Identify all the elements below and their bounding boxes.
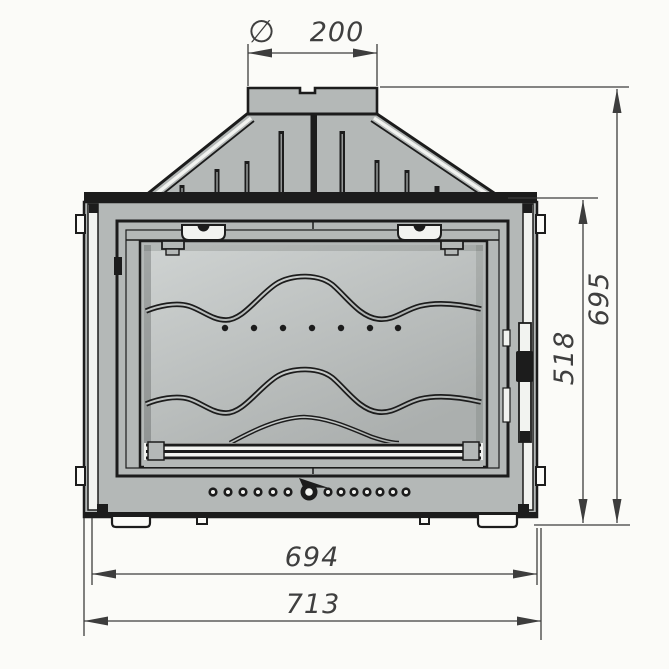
louver-left-cap	[148, 442, 164, 460]
dim-body-width: 694	[92, 518, 537, 585]
right-strip-bottom-clip	[518, 504, 529, 514]
arrow-bottom	[613, 499, 622, 523]
arrow-left	[92, 570, 116, 579]
glass-left-shade	[144, 245, 151, 443]
left-upper-hook	[76, 215, 85, 233]
latch-slot-upper	[503, 330, 510, 346]
flue-diameter-value: 200	[310, 17, 365, 48]
louver-right-cap	[463, 442, 479, 460]
hood-outline	[146, 114, 497, 195]
glass-top-shade	[144, 245, 483, 251]
body-width-value: 694	[285, 542, 340, 573]
left-strip-top-clip	[89, 204, 98, 213]
door	[114, 221, 508, 476]
latch-slot-lower	[503, 388, 510, 422]
flue-collar-outline	[248, 88, 377, 114]
dim-overall-width: 713	[84, 518, 541, 640]
arrow-right	[517, 617, 541, 626]
handle-grip	[516, 351, 533, 382]
overall-width-value: 713	[286, 589, 341, 620]
bottom-edge	[84, 512, 537, 517]
hood-center-seam	[311, 114, 318, 196]
top-plate	[84, 192, 537, 202]
right-lower-hook	[536, 467, 545, 485]
right-tab	[420, 517, 429, 524]
glass-right-shade	[476, 245, 483, 443]
overall-height-value: 695	[584, 272, 615, 327]
right-glass-clip-tab	[445, 249, 458, 255]
right-strip-top-clip	[523, 204, 532, 213]
left-glass-clip	[162, 241, 184, 249]
left-edge-strip	[88, 204, 98, 510]
door-louver	[144, 442, 483, 467]
left-lower-hook	[76, 467, 85, 485]
hood	[146, 114, 497, 201]
fireplace-technical-drawing: ∅ 200 695 518 694 713	[0, 0, 669, 669]
right-upper-hook	[536, 215, 545, 233]
left-tab	[197, 517, 207, 524]
arrow-top	[613, 89, 622, 113]
arrow-bottom	[579, 499, 588, 523]
flue-collar	[248, 88, 377, 114]
arrow-right	[353, 49, 377, 58]
drawing-sheet: ∅ 200 695 518 694 713	[0, 0, 669, 669]
arrow-top	[579, 200, 588, 224]
right-bracket	[478, 515, 517, 527]
left-glass-clip-tab	[166, 249, 179, 255]
arrow-left	[84, 617, 108, 626]
dim-flue-diameter: ∅ 200	[248, 14, 377, 86]
latch-bar	[519, 323, 531, 442]
right-glass-clip	[441, 241, 463, 249]
left-strip-bottom-clip	[97, 504, 108, 514]
latch-bar-cap	[520, 431, 530, 442]
left-bracket	[112, 517, 150, 527]
left-hinge	[114, 257, 122, 275]
flue-diameter-symbol: ∅	[248, 14, 276, 50]
arrow-right	[513, 570, 537, 579]
firebox-height-value: 518	[549, 331, 580, 386]
